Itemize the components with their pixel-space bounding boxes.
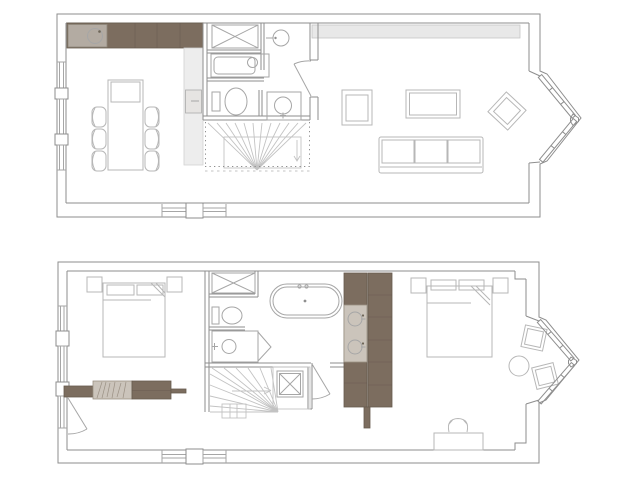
desk [434,419,483,451]
nightstand [493,278,508,293]
dining-chair [145,151,159,171]
freestanding-bathtub [270,284,342,318]
dining-table [108,80,143,170]
double-vanity [344,273,392,428]
landing-rooflight [273,367,310,409]
upper-floor-plan [55,14,581,218]
inner-wall [66,23,540,203]
pillow [431,280,456,290]
nightstand [167,277,182,292]
desk-chair [448,419,467,433]
washbasin [266,30,289,46]
window-pier [56,331,69,346]
inner-wall [67,271,539,450]
bottom-wall-windows [162,203,226,218]
window-pier [55,134,68,145]
entry-door [68,398,87,434]
pillow [459,280,484,290]
pillow [107,285,134,295]
floor-plan-drawing [0,0,640,480]
wardrobe-sideboard [64,381,186,399]
winder-stairs [210,368,278,418]
double-bed-2 [427,280,492,357]
armchair [342,90,372,125]
dining-chair [92,129,106,149]
floor-plan-canvas [0,0,640,480]
window-pier [186,449,203,464]
kitchen-counter [67,23,203,48]
shower [212,331,272,362]
accent-chair [488,92,526,130]
dining-chair [145,129,159,149]
round-side-table [509,356,529,376]
toilet [212,307,242,324]
small-bathtub [211,54,269,77]
coffee-table [406,90,460,118]
bay-tip [569,357,577,367]
bottom-wall-windows [162,449,226,464]
door-swing [294,61,311,96]
partition-stub [364,407,370,428]
nightstand [87,277,102,292]
outer-wall [58,262,579,463]
bay-window [538,75,578,163]
duvet-fold [471,286,490,305]
washing-machine [212,25,258,48]
sofa [379,137,483,173]
winder-stairs [205,122,310,171]
head-chair [111,82,140,102]
lounge-chair [532,363,559,390]
nightstand [411,278,426,293]
dining-chair [92,151,106,171]
sink-drain [98,30,101,33]
window-pier [55,88,68,99]
lower-floor-plan [56,262,579,464]
stair-flight [222,404,246,418]
storage-band [312,25,520,38]
basin-section [344,305,367,362]
dining-chair [92,107,106,127]
washing-machine [212,273,255,293]
double-bed-1 [103,283,165,357]
window-pier [186,203,203,218]
dining-chair [145,107,159,127]
tall-cabinet [184,48,203,165]
landing-door [312,364,330,399]
toilet [212,88,247,115]
